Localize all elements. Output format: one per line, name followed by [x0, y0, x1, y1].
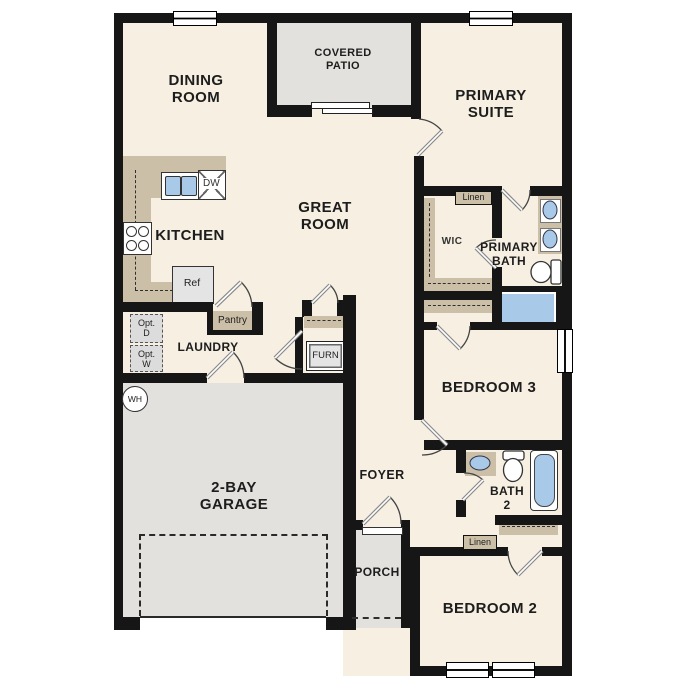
furnace-label: FURN	[307, 350, 344, 361]
wic-rod-dash-bottom	[428, 283, 490, 284]
dishwasher-label: DW	[202, 178, 221, 189]
garage-opening-line	[140, 616, 326, 618]
dining-l2: ROOM	[136, 89, 256, 106]
suite-l2: SUITE	[431, 104, 551, 121]
bath2-l2: 2	[467, 499, 547, 513]
patio-l1: COVERED	[283, 47, 403, 60]
garage-door-outline	[139, 534, 328, 616]
pbath-l2: BATH	[464, 255, 554, 269]
wall-left	[114, 13, 123, 630]
room-label-kitchen: KITCHEN	[135, 227, 245, 244]
opt-dryer-box: Opt. D	[130, 314, 163, 343]
primary-linen-label: Linen	[455, 193, 492, 202]
water-heater-label: WH	[128, 394, 142, 404]
dining-l1: DINING	[136, 72, 256, 89]
pbath-l1: PRIMARY	[464, 241, 554, 255]
coat-closet-rod-dash	[307, 320, 341, 321]
room-label-garage: 2-BAY GARAGE	[174, 479, 294, 513]
window-dining	[173, 11, 217, 26]
coat-closet-shelf	[304, 316, 344, 328]
bath2-l1: BATH	[467, 485, 547, 499]
patio-l2: PATIO	[283, 60, 403, 73]
room-label-great-room: GREAT ROOM	[265, 199, 385, 233]
wall-bedroom2-left	[410, 547, 420, 666]
great-l1: GREAT	[265, 199, 385, 216]
pantry-label: Pantry	[213, 316, 252, 327]
window-bedroom2-right	[492, 662, 535, 678]
garage-l1: 2-BAY	[174, 479, 294, 496]
sink-basin-right	[181, 176, 197, 196]
porch-edge-dash	[352, 617, 401, 619]
kitchen-cabinet-dash2	[135, 290, 173, 291]
wall-bedroom2-bottom	[410, 666, 572, 676]
room-label-foyer: FOYER	[332, 468, 432, 482]
hall-linen-label: Linen	[463, 538, 497, 547]
floor-plan: DW Ref Pantry FURN Opt. D Opt. W	[0, 0, 687, 687]
room-label-primary-suite: PRIMARY SUITE	[431, 87, 551, 121]
great-l2: ROOM	[265, 216, 385, 233]
garage-l2: GARAGE	[174, 496, 294, 513]
wall-garage-bottom-left	[114, 617, 140, 630]
sink-basin-left	[165, 176, 181, 196]
room-label-bedroom3: BEDROOM 3	[429, 379, 549, 396]
refrigerator-label: Ref	[180, 278, 204, 289]
sliding-door-panel2	[322, 108, 373, 114]
bedroom3-closet-shelf	[424, 300, 492, 313]
wall-kitchen-south	[114, 302, 210, 312]
bedroom3-closet-rod-dash	[428, 305, 490, 306]
bath2-vanity-counter	[465, 452, 496, 476]
wic-shelf-bottom	[424, 278, 492, 291]
furnace-icon: FURN	[306, 341, 345, 371]
wall-garage-top-left	[114, 373, 207, 383]
kitchen-counter-return	[123, 282, 174, 302]
bedroom2-closet-rod-dash	[502, 526, 555, 527]
water-heater-icon: WH	[122, 386, 148, 412]
primary-sink-1	[540, 199, 561, 223]
window-primary-suite	[469, 11, 513, 26]
window-bedroom2-left	[446, 662, 489, 678]
room-label-primary-bath: PRIMARY BATH	[464, 241, 554, 268]
opt-dryer-l1: Opt.	[138, 318, 155, 328]
shower-icon	[498, 292, 556, 324]
wall-garage-top-right	[244, 373, 356, 383]
opt-dryer-l2: D	[143, 328, 150, 338]
front-door-threshold	[362, 527, 403, 535]
room-label-bath2: BATH 2	[467, 485, 547, 512]
room-label-covered-patio: COVERED PATIO	[283, 47, 403, 72]
room-label-dining: DINING ROOM	[136, 72, 256, 106]
room-label-laundry: LAUNDRY	[153, 341, 263, 355]
window-bedroom3	[557, 329, 573, 373]
room-label-porch: PORCH	[332, 566, 422, 580]
opt-washer-l2: W	[142, 359, 151, 369]
room-label-bedroom2: BEDROOM 2	[430, 600, 550, 617]
suite-l1: PRIMARY	[431, 87, 551, 104]
wall-suite-bottom-right	[530, 186, 572, 196]
